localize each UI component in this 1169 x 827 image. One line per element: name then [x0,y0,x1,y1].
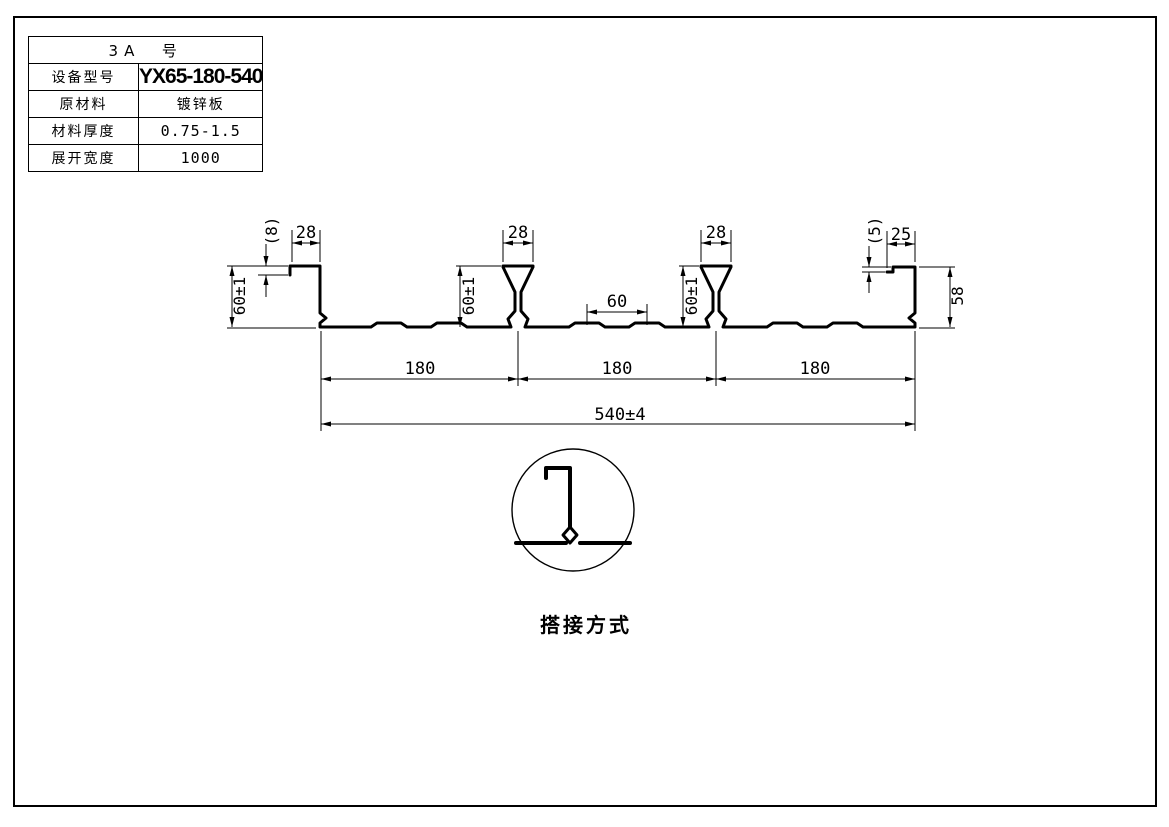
dim-left-height: 60±1 [230,277,249,316]
dim-left-top-width: 28 [296,223,316,243]
dim-rib1-top-width: 28 [508,223,528,243]
dim-span1: 180 [405,359,436,379]
profile-path [290,266,915,327]
dimension-texts: 28 (8) 60±1 28 60±1 60 28 60±1 (5) 25 58… [230,217,967,425]
dim-left-lip-height: (8) [262,217,281,246]
deck-profile-outline [290,266,915,327]
dim-right-height: 58 [948,286,967,305]
drawing-sheet: 3A 号 设备型号 YX65-180-540 原材料 镀锌板 材料厚度 0.75… [0,0,1169,827]
lap-joint-detail [512,449,634,571]
dim-rib2-top-width: 28 [706,223,726,243]
dim-rib2-height: 60±1 [682,277,701,316]
detail-seam-diamond [563,527,577,543]
detail-seam-stem [546,468,570,527]
dim-span3: 180 [800,359,831,379]
profile-cross-section: 28 (8) 60±1 28 60±1 60 28 60±1 (5) 25 58… [0,0,1169,827]
dim-overall-width: 540±4 [594,405,645,425]
detail-caption: 搭接方式 [496,609,676,638]
dim-right-lip-height: (5) [865,217,884,246]
dim-rib1-height: 60±1 [459,277,478,316]
dim-span2: 180 [602,359,633,379]
detail-circle [512,449,634,571]
dim-emboss-spacing: 60 [607,292,627,312]
dimension-lines [227,230,955,431]
dim-right-top-width: 25 [891,225,911,245]
